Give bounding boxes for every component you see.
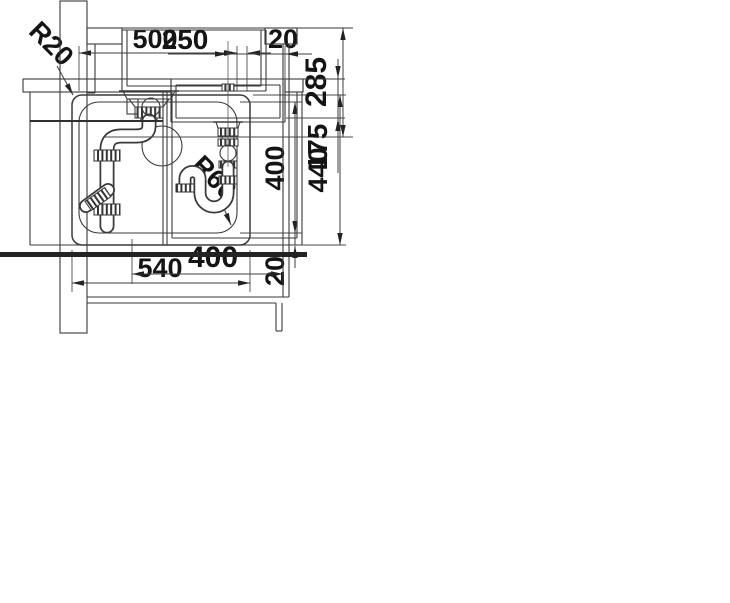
dim-label-250: 250 — [162, 24, 209, 55]
floor-line — [0, 252, 307, 257]
siphon-front — [176, 122, 243, 207]
control-button — [127, 99, 138, 114]
dim-label-175: 175 — [302, 124, 333, 171]
dim-bowl-depth: 175 — [286, 59, 345, 173]
dishwasher-front — [30, 92, 163, 245]
control-knob — [142, 98, 160, 116]
dim-drain-offset: 250 — [162, 24, 312, 79]
technical-drawing-sheet: 500 20 R20 R60 400 — [0, 0, 730, 603]
front-section-view: 250 175 — [0, 0, 365, 258]
